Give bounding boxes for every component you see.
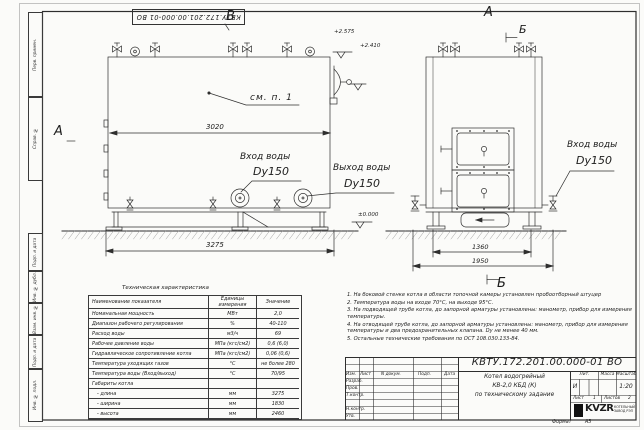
table-title: Техническая характеристика [122, 286, 209, 292]
note-5: 5. Остальные технические требования по О… [347, 336, 638, 343]
inlet-side-leader [241, 181, 301, 192]
table-cell: Температура воды (Вход/выход) [89, 369, 209, 379]
sheet-value: 1 [593, 397, 596, 401]
table-cell: - высота [89, 409, 209, 419]
note-3: 3. На подводящей трубе котла, до запорно… [347, 307, 638, 320]
frame-label-podp-data-1: Подп. и дата [28, 233, 43, 272]
lower-opening [461, 213, 509, 227]
dim-1950: 1950 [472, 258, 489, 265]
table-cell: МПа (кгс/см2) [209, 339, 257, 349]
table-cell: МПа (кгс/см2) [209, 349, 257, 359]
table-header: Наименование показателя [89, 296, 209, 309]
callout-see-note-1: см. п. 1 [250, 94, 293, 103]
table-cell: Номинальная мощность [89, 309, 209, 319]
doc-number: КВТУ.172.201.00.000-01 ВО [458, 358, 636, 368]
format-label: Формат [552, 421, 571, 426]
scale-label: Масштаб [616, 373, 636, 377]
row-utv: Утв. [346, 415, 355, 419]
row-nkontr: Н.контр. [346, 408, 365, 412]
table-cell: 3275 [257, 389, 299, 399]
elevation-marks [333, 52, 372, 228]
frame-label-perv-primen: Перв. примен. [28, 12, 43, 98]
inlet-front-dn: Dy150 [576, 155, 612, 166]
table-cell: не более 280 [257, 359, 299, 369]
table-cell [209, 379, 257, 389]
outlet-side-label: Выход воды [333, 164, 390, 173]
elevation-0000: ±0.000 [358, 213, 378, 219]
table-cell: °С [209, 369, 257, 379]
row-prov: Пров. [346, 387, 359, 391]
water-ports-side [231, 189, 312, 207]
drawing-sheet: { "frame": { "stamp": "КВТУ.172.201.00.0… [0, 0, 644, 430]
lit-label: Лит. [571, 373, 598, 377]
table-header: Значение [257, 296, 299, 309]
dim-3020: 3020 [206, 124, 224, 131]
front-b-bottom-label: Б [497, 277, 506, 290]
furnace-doors [441, 128, 514, 212]
ground-hatch [386, 231, 561, 239]
elevation-2410: +2.410 [360, 44, 380, 50]
frame-label-inv-podl: Инв. № подл. [28, 368, 43, 422]
table-cell: 0,6 (6,0) [257, 339, 299, 349]
table-cell: °С [209, 359, 257, 369]
table-cell: 40-110 [257, 319, 299, 329]
technical-notes: 1. На боковой стенке котла в области топ… [347, 292, 638, 344]
rear-hatch [330, 66, 351, 104]
table-cell: Расход воды [89, 329, 209, 339]
inlet-front-leader [556, 171, 614, 196]
frame-label-podp-data-2: Подп. и дата [28, 334, 43, 370]
table-cell: мм [209, 389, 257, 399]
table-header: Единицы измерения [209, 296, 257, 309]
table-cell: Температура уходящих газов [89, 359, 209, 369]
front-b-top-label: Б [519, 24, 527, 35]
table-cell: МВт [209, 309, 257, 319]
elevation-2575: +2.575 [334, 30, 354, 36]
table-cell: 0,06 (0,6) [257, 349, 299, 359]
table-cell: Гидравлическое сопротивление котла [89, 349, 209, 359]
dim-3020-line [110, 131, 330, 135]
section-b-marks [487, 33, 517, 284]
skid-frame [106, 212, 328, 230]
mass-label: Масса [599, 373, 616, 377]
lit-value: И [570, 384, 580, 390]
row-razrab: Разраб. [346, 380, 363, 384]
sheets-label: Листов [604, 397, 620, 401]
format-value: А3 [585, 421, 591, 426]
table-cell: 1830 [257, 399, 299, 409]
outlet-side-dn: Dy150 [344, 178, 380, 189]
frame-label-inv-dubl: Инв. № дубл. [28, 270, 43, 304]
front-a-label: А [484, 6, 493, 19]
doc-name-line3: по техническому задание [459, 393, 570, 399]
scale-value: 1:20 [616, 384, 636, 390]
inlet-front-label: Вход воды [567, 141, 617, 150]
table-cell: 69 [257, 329, 299, 339]
table-cell: мм [209, 409, 257, 419]
kvzr-logo-icon [574, 404, 583, 417]
col-izm: Изм. [346, 373, 356, 377]
row-tkontr: Т.контр. [346, 394, 365, 398]
table-cell: 2460 [257, 409, 299, 419]
front-legs [426, 212, 542, 229]
sheet-label: Лист [573, 397, 584, 401]
doc-name-line2: КВ-2,0 КБД (К) [459, 384, 570, 390]
table-cell: 70/95 [257, 369, 299, 379]
table-cell [257, 379, 299, 389]
dim-1360: 1360 [472, 244, 489, 251]
table-cell: 2,0 [257, 309, 299, 319]
table-cell: - ширина [89, 399, 209, 409]
inlet-side-label: Вход воды [240, 153, 290, 162]
frame-label-sprav-no: Справ. № [28, 96, 43, 181]
doc-name-line1: Котел водогрейный [459, 375, 570, 381]
logo-subtext-2: ЗАВОД РЭП [614, 410, 633, 413]
view-b-label: В [226, 10, 235, 23]
col-ndoc: N докум. [381, 373, 401, 377]
note-4: 4. На отводящей трубе котла, до запорной… [347, 322, 638, 335]
table-cell: мм [209, 399, 257, 409]
dim-3275: 3275 [206, 242, 224, 249]
note-2: 2. Температура воды на входе 70°С, на вы… [347, 300, 638, 307]
frame-label-vzam-inv: Взам. инв. № [28, 302, 43, 336]
table-cell: Диапазон рабочего регулирования [89, 319, 209, 329]
col-podp: Подп. [418, 373, 431, 377]
col-list: Лист [360, 373, 371, 377]
inlet-side-dn: Dy150 [253, 166, 289, 177]
sheets-value: 2 [628, 397, 631, 401]
note-1: 1. На боковой стенке котла в области топ… [347, 292, 638, 299]
table-cell: - длина [89, 389, 209, 399]
section-a-left-label: А [54, 125, 63, 138]
table-cell: Габариты котла [89, 379, 209, 389]
table-cell: % [209, 319, 257, 329]
table-cell: м3/ч [209, 329, 257, 339]
side-view [62, 24, 394, 256]
table-cell: Рабочее давление воды [89, 339, 209, 349]
tech-table: Наименование показателя Единицы измерени… [88, 295, 302, 420]
col-data: Дата [444, 373, 455, 377]
kvzr-logo-text: KVZR [585, 404, 613, 414]
outlet-side-leader [307, 193, 394, 196]
top-valves-front [439, 43, 536, 57]
